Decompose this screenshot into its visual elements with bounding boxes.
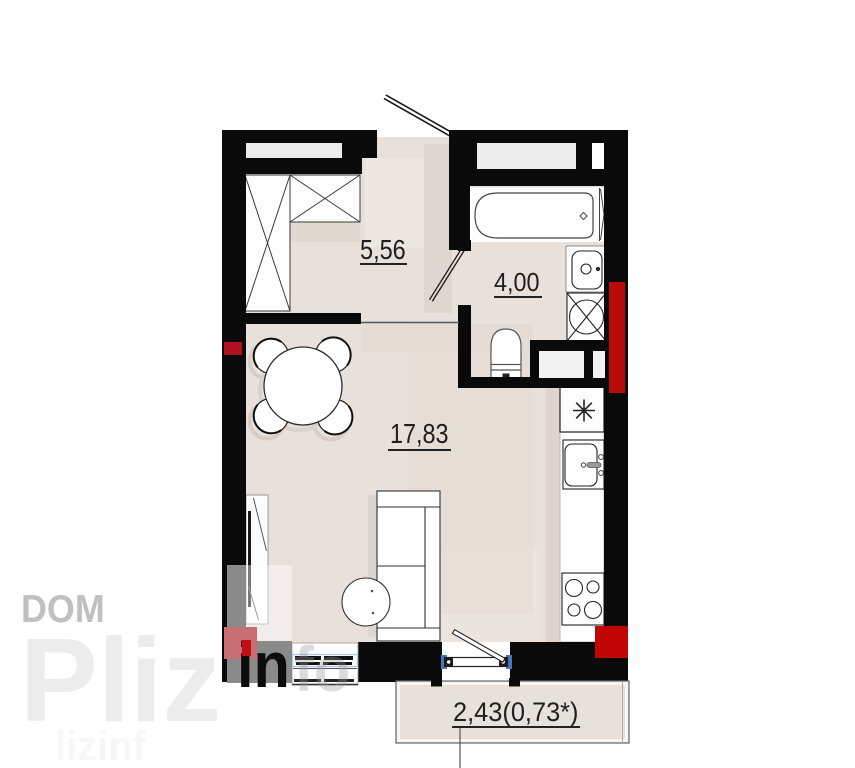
svg-text:lizinf: lizinf: [55, 722, 146, 768]
svg-text:2,43(0,73*): 2,43(0,73*): [453, 696, 579, 727]
svg-text:4,00: 4,00: [494, 269, 540, 297]
svg-text:fo: fo: [294, 634, 350, 705]
svg-text:17,83: 17,83: [390, 419, 448, 449]
svg-text:5,56: 5,56: [360, 235, 406, 265]
